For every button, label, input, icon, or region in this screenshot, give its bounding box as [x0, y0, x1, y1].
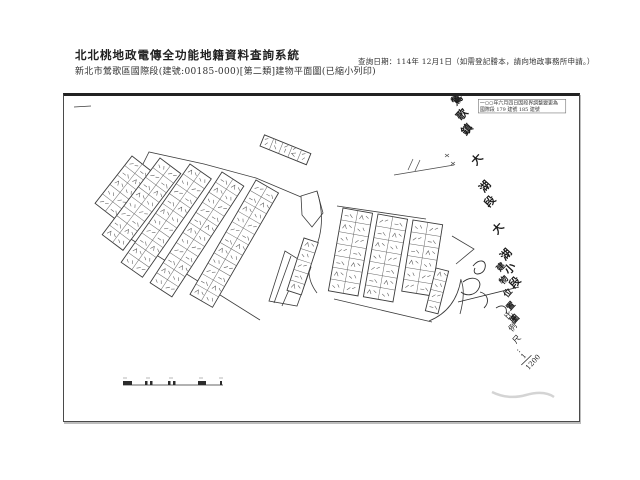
stamp-line1: 一○○年六月四日因段界調整變更為 [480, 100, 564, 106]
map-boundary-line [460, 280, 463, 314]
map-boundary-line [334, 299, 432, 322]
handwritten-annotation [461, 278, 480, 295]
svg-text:1200: 1200 [524, 353, 542, 372]
svg-text:湖: 湖 [497, 245, 515, 263]
svg-text:歌: 歌 [453, 105, 471, 123]
svg-text:段: 段 [481, 192, 499, 210]
annotation-leader-line [408, 159, 413, 170]
system-title: 北北桃地政電傳全功能地籍資料查詢系統 [75, 47, 300, 63]
svg-text:大: 大 [489, 219, 507, 237]
annotation-leader-line [445, 154, 449, 157]
svg-text:湖: 湖 [476, 177, 494, 195]
registration-stamp: 一○○年六月四日因段界調整變更為 國際段 179 建號 185 建號 [478, 99, 566, 113]
handwritten-annotation [480, 292, 487, 308]
page: { "header": { "system_title": "北北桃地政電傳全功… [0, 0, 640, 480]
handwritten-annotation [473, 261, 485, 274]
pencil-smudge [492, 392, 554, 397]
parcel-strip [260, 135, 311, 165]
scanned-floor-plan-page: 鶯歌鎮大湖段大湖小段建物位置圖比例尺:11200 一○○年六月四日因段界調整變更… [63, 93, 580, 422]
map-boundary-line [274, 256, 291, 303]
annotation-leader-line [394, 165, 454, 175]
annotation-leader-line [415, 160, 420, 171]
annotation-leader-line [451, 162, 455, 165]
scale-bar [123, 378, 223, 385]
stamp-line2: 國際段 179 建號 185 建號 [480, 106, 564, 112]
map-boundary-line [452, 236, 474, 264]
map-boundary-line [301, 191, 323, 227]
svg-text:尺: 尺 [511, 333, 523, 345]
cadastral-map-drawing: 鶯歌鎮大湖段大湖小段建物位置圖比例尺:11200 [64, 96, 579, 421]
query-date-note: 查詢日期：114年 12月1日（如需登記謄本，請向地政事務所申請。） [358, 56, 595, 67]
document-subtitle: 新北市鶯歌區國際段(建號:00185-000)[第二類]建物平面圖(已縮小列印) [75, 64, 376, 77]
scale-fraction: 11200 [515, 346, 542, 373]
svg-text:鶯: 鶯 [448, 96, 466, 108]
map-boundary-line [74, 106, 91, 107]
scale-label: 比例尺: [502, 309, 523, 355]
parcel-strip [287, 238, 318, 295]
svg-text:鎮: 鎮 [458, 120, 476, 138]
svg-text:大: 大 [468, 150, 486, 168]
